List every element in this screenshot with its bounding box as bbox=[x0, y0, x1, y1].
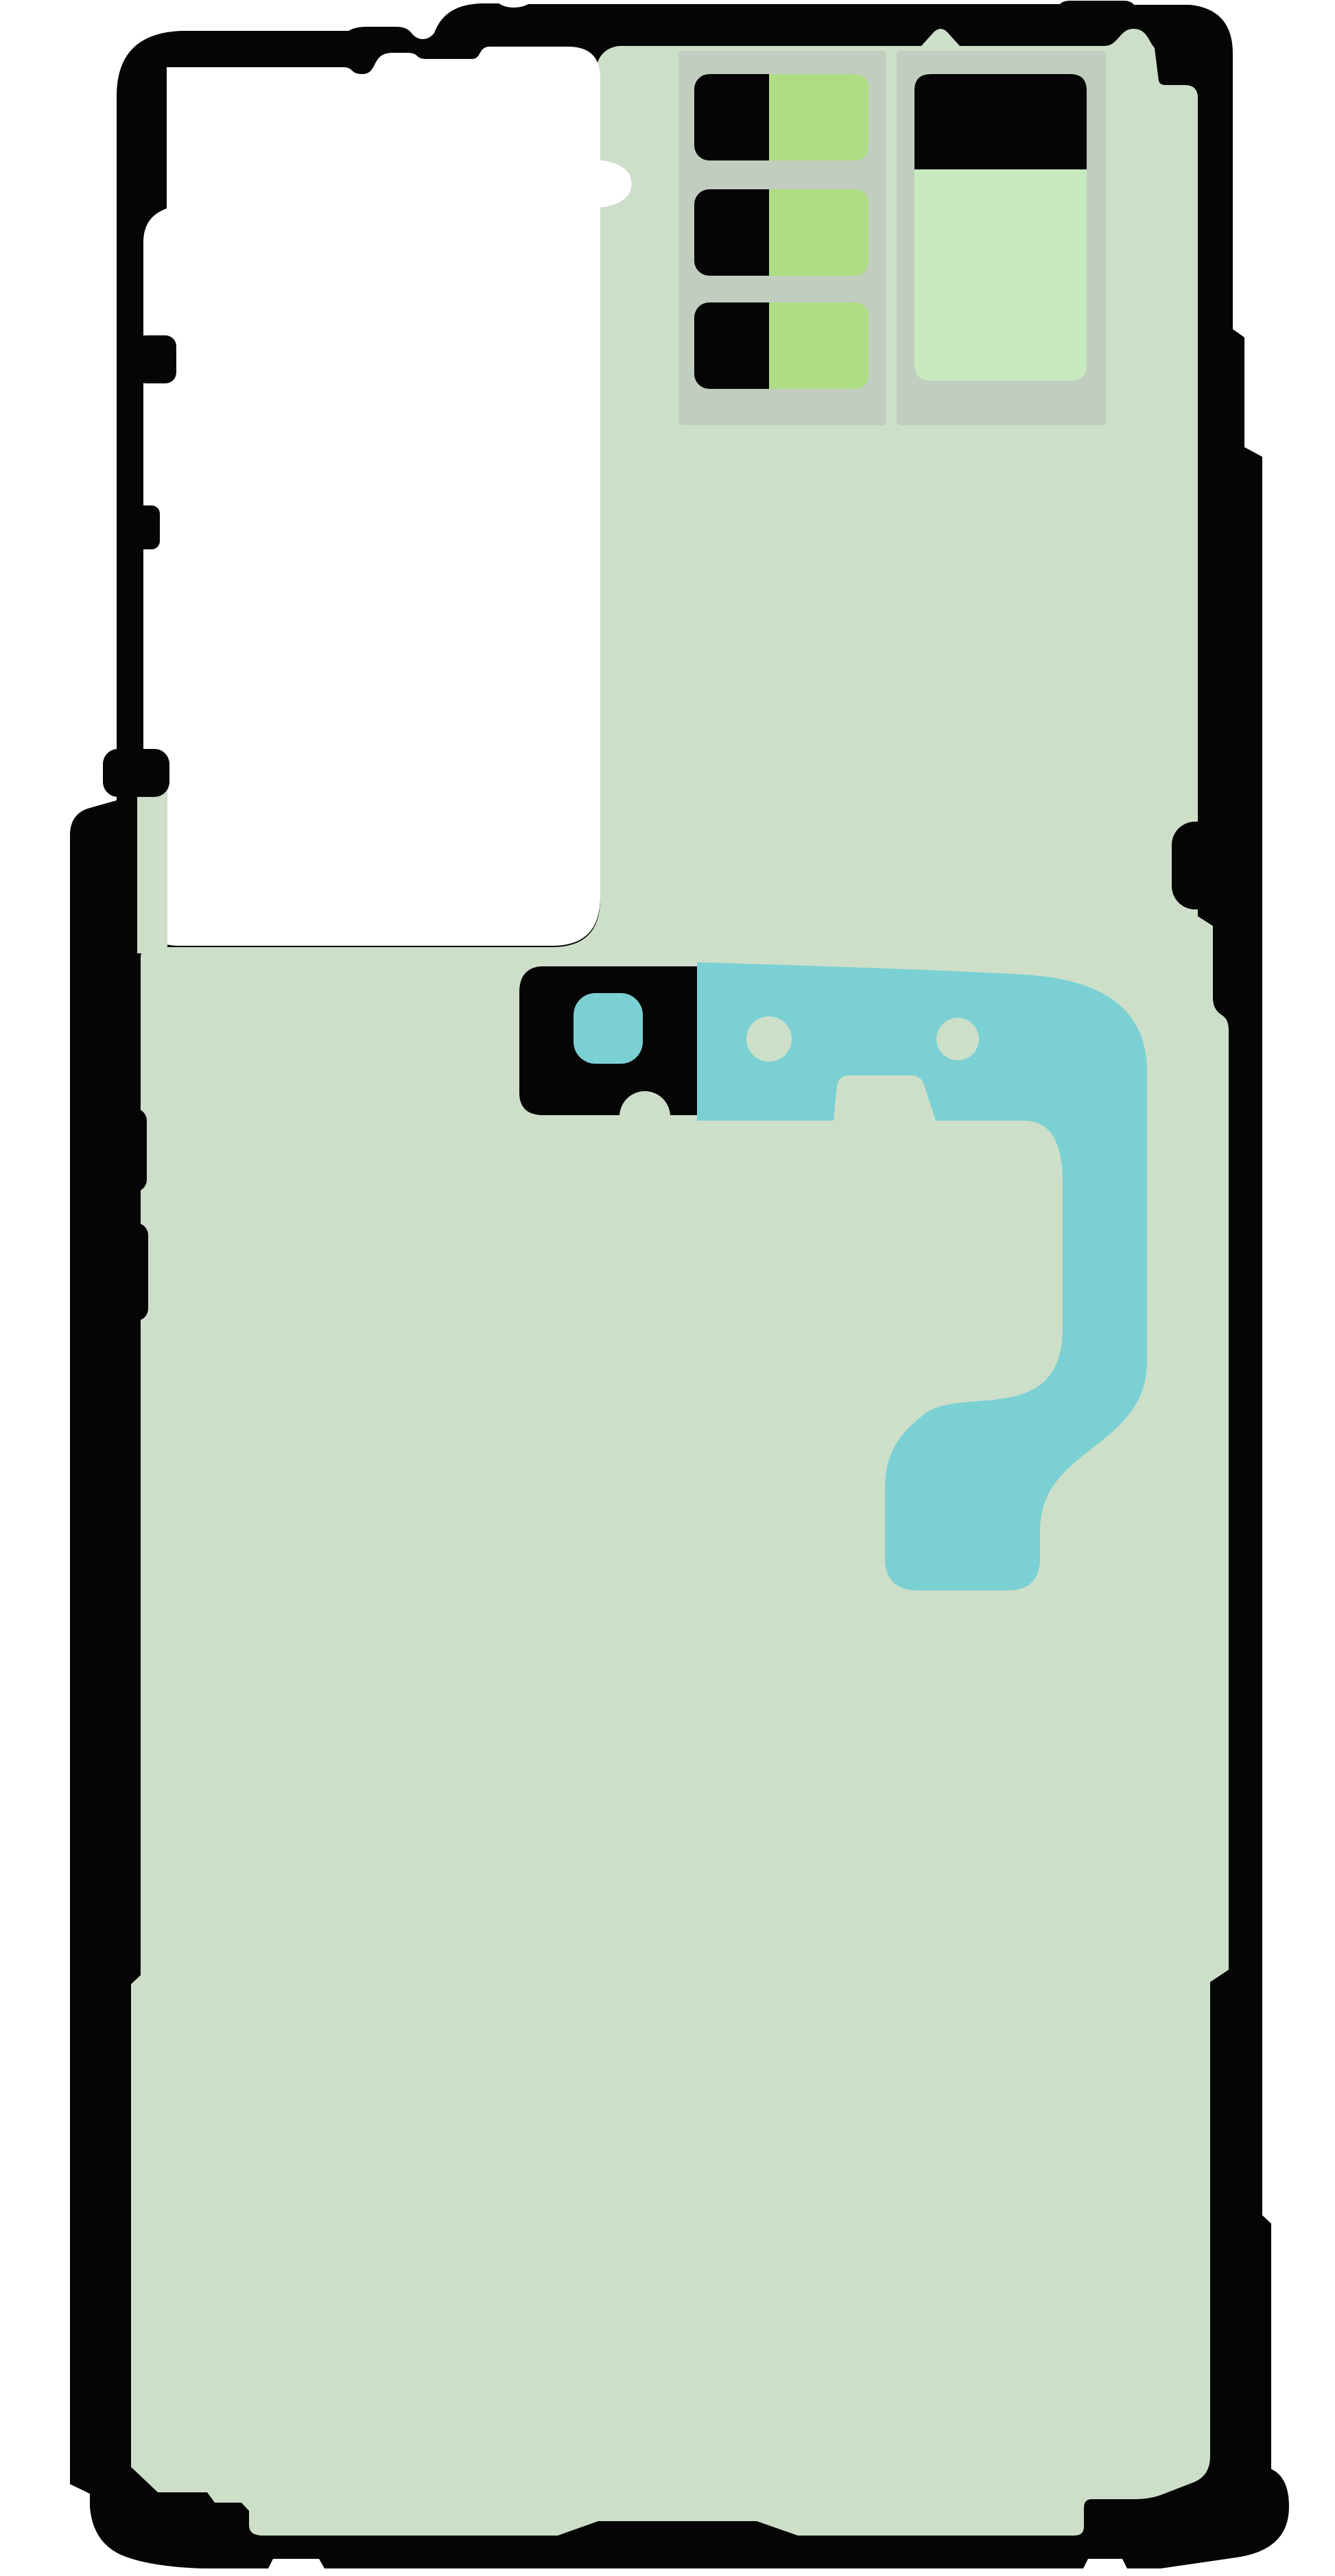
frame-tooth-upper bbox=[135, 335, 176, 383]
flex-hole-right bbox=[936, 1018, 979, 1060]
frame-right-blob bbox=[1172, 822, 1243, 909]
strip-1-green bbox=[769, 74, 869, 160]
strip-2-green bbox=[769, 189, 869, 276]
frame-bump-notch bbox=[103, 749, 169, 797]
camera-region-cutout bbox=[143, 47, 632, 946]
strip-3-green bbox=[769, 302, 869, 389]
sticker-palette-left bbox=[678, 51, 886, 425]
sticker-palette-right bbox=[897, 51, 1106, 425]
frame-tooth-mid-a bbox=[110, 1108, 147, 1192]
patch-black-top bbox=[914, 74, 1087, 169]
product-image bbox=[0, 0, 1335, 2576]
bracket-teal-window bbox=[574, 993, 643, 1064]
patch-mint-bottom bbox=[914, 169, 1087, 381]
liner-finger-strip bbox=[137, 789, 167, 953]
frame-tooth-mid-b bbox=[110, 1223, 148, 1321]
bracket-bottom-notch bbox=[619, 1091, 670, 1142]
adhesive-kit-illustration bbox=[0, 0, 1335, 2576]
frame-tooth-small bbox=[135, 505, 160, 549]
flex-hole-left bbox=[746, 1016, 792, 1062]
